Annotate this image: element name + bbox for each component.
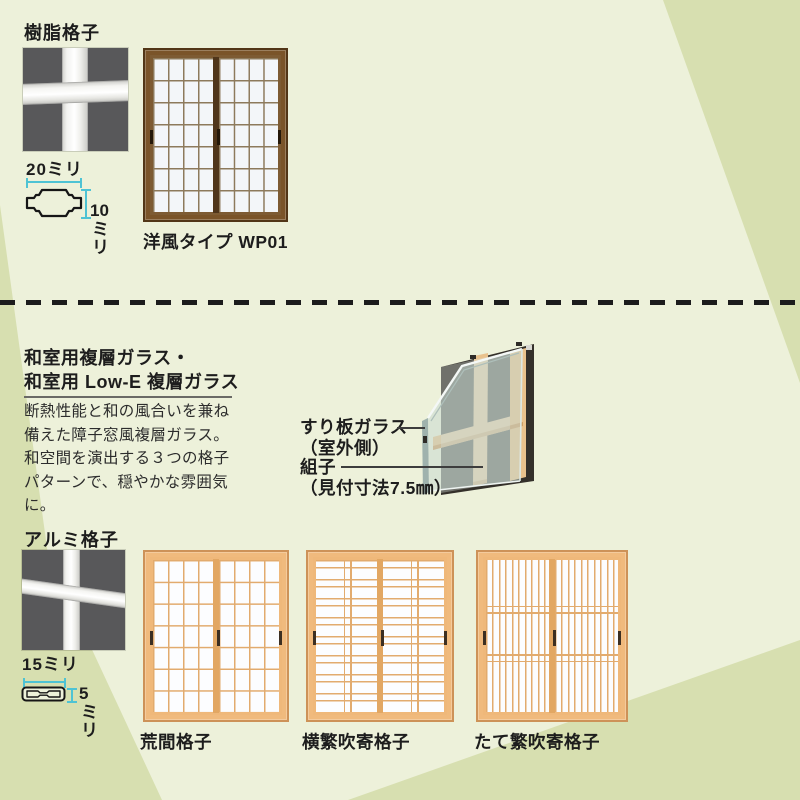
aluminum-width-dimension-label: 15ミリ [22,650,79,675]
yokoshige-caption: 横繁吹寄格子 [302,729,410,754]
window-illustration-arama [143,550,289,722]
resin-height-unit: ミリ [92,221,111,258]
resin-height-value: 10 [90,201,109,221]
aluminum-lattice-closeup-photo [22,550,125,650]
frosted-glass-leader-line [397,427,425,429]
frosted-glass-label-line2: （室外側） [300,438,408,459]
glazing-description-text: 断熱性能と和の風合いを兼ね備えた障子窓風複層ガラス。和空間を演出する３つの格子パ… [24,400,244,518]
window-illustration-yokoshige [306,550,454,722]
resin-lattice-closeup-photo [23,48,128,151]
glazing-heading-line2: 和室用 Low-E 複層ガラス [24,371,239,395]
resin-height-dimension-line [85,189,87,219]
resin-lattice-heading: 樹脂格子 [24,19,100,45]
catalog-page: 樹脂格子 20ミリ 10 ミリ 洋風タイプ WP01 和室用複層ガラス・ 和室用… [0,0,800,800]
aluminum-height-unit: ミリ [81,704,100,741]
aluminum-profile-cross-section [21,686,67,703]
kumiko-label: 組子 （見付寸法7.5㎜） [300,457,452,498]
wp01-caption: 洋風タイプ WP01 [143,229,288,254]
tateshige-caption: たて繁吹寄格子 [474,729,600,754]
window-illustration-wp01 [143,48,288,222]
kumiko-leader-line [341,466,483,468]
aluminum-height-dimension-label: 5 ミリ [79,684,100,741]
frosted-glass-label: すり板ガラス （室外側） [300,417,408,458]
aluminum-lattice-heading: アルミ格子 [24,526,119,552]
arama-caption: 荒間格子 [140,729,212,754]
window-illustration-tateshige [476,550,628,722]
lattice-horizontal-bar [23,80,128,106]
frosted-glass-label-line1: すり板ガラス [300,417,408,438]
resin-profile-cross-section [25,187,83,219]
resin-height-dimension-label: 10 ミリ [90,201,111,258]
aluminum-width-dimension-line [23,681,66,683]
section-divider-dashed-line [0,300,800,305]
resin-width-dimension-label: 20ミリ [26,155,83,180]
heading-underline [24,396,232,398]
glazing-heading-line1: 和室用複層ガラス・ [24,347,239,371]
kumiko-label-line2: （見付寸法7.5㎜） [300,478,452,499]
resin-width-dimension-line [26,181,82,183]
glazing-section-heading: 和室用複層ガラス・ 和室用 Low-E 複層ガラス [24,347,239,395]
aluminum-height-dimension-line [71,688,73,703]
aluminum-height-value: 5 [79,684,88,704]
